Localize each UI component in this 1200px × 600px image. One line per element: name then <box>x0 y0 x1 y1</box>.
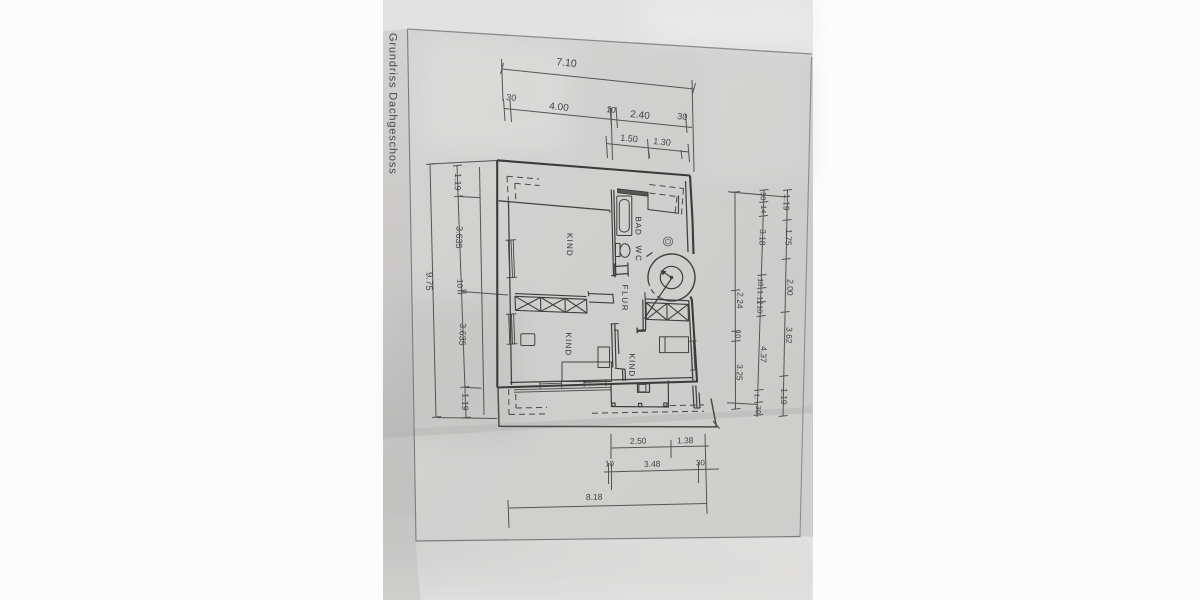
svg-text:3.25: 3.25 <box>734 364 745 381</box>
svg-text:10: 10 <box>734 330 743 339</box>
svg-text:WC: WC <box>634 245 643 262</box>
svg-text:2.40: 2.40 <box>630 109 651 122</box>
svg-text:Grundriss Dachgeschoss: Grundriss Dachgeschoss <box>387 33 399 175</box>
svg-text:1.38: 1.38 <box>677 435 694 445</box>
svg-text:10: 10 <box>605 459 615 468</box>
svg-text:KIND: KIND <box>627 353 636 377</box>
svg-text:1.19: 1.19 <box>779 388 790 405</box>
svg-text:10: 10 <box>455 279 464 289</box>
svg-text:30: 30 <box>759 192 768 201</box>
svg-text:30: 30 <box>506 92 517 103</box>
svg-text:30: 30 <box>677 111 688 122</box>
svg-text:3.635: 3.635 <box>454 226 465 249</box>
svg-text:KIND: KIND <box>565 233 574 257</box>
svg-text:3.18: 3.18 <box>757 229 768 246</box>
svg-text:1.19: 1.19 <box>781 194 792 211</box>
svg-text:3.635: 3.635 <box>457 323 468 346</box>
svg-text:4.00: 4.00 <box>549 101 570 114</box>
svg-text:2.24: 2.24 <box>735 292 746 309</box>
svg-text:2.00: 2.00 <box>785 279 796 296</box>
svg-text:8.18: 8.18 <box>586 492 603 502</box>
svg-text:4.37: 4.37 <box>758 346 769 363</box>
svg-text:10: 10 <box>606 104 617 115</box>
svg-text:9.75: 9.75 <box>423 272 434 291</box>
svg-text:BAD: BAD <box>633 216 642 235</box>
svg-text:FLUR: FLUR <box>620 284 629 312</box>
svg-text:1.30: 1.30 <box>653 136 671 148</box>
svg-text:1.19: 1.19 <box>453 173 463 191</box>
svg-text:30: 30 <box>696 458 706 467</box>
svg-text:3.48: 3.48 <box>644 459 661 469</box>
svg-text:1.12: 1.12 <box>755 290 765 305</box>
svg-text:1.50: 1.50 <box>620 133 638 145</box>
svg-text:30: 30 <box>754 405 763 414</box>
svg-text:KIND: KIND <box>564 332 573 356</box>
svg-text:3.62: 3.62 <box>784 327 795 344</box>
svg-text:10: 10 <box>756 278 765 287</box>
svg-text:7.10: 7.10 <box>556 56 578 70</box>
svg-text:1.75: 1.75 <box>783 229 794 246</box>
svg-text:10: 10 <box>755 305 764 314</box>
svg-text:1.19: 1.19 <box>460 393 471 411</box>
svg-text:1.: 1. <box>753 393 760 399</box>
svg-text:2.50: 2.50 <box>630 436 647 446</box>
svg-text:14: 14 <box>759 205 768 214</box>
